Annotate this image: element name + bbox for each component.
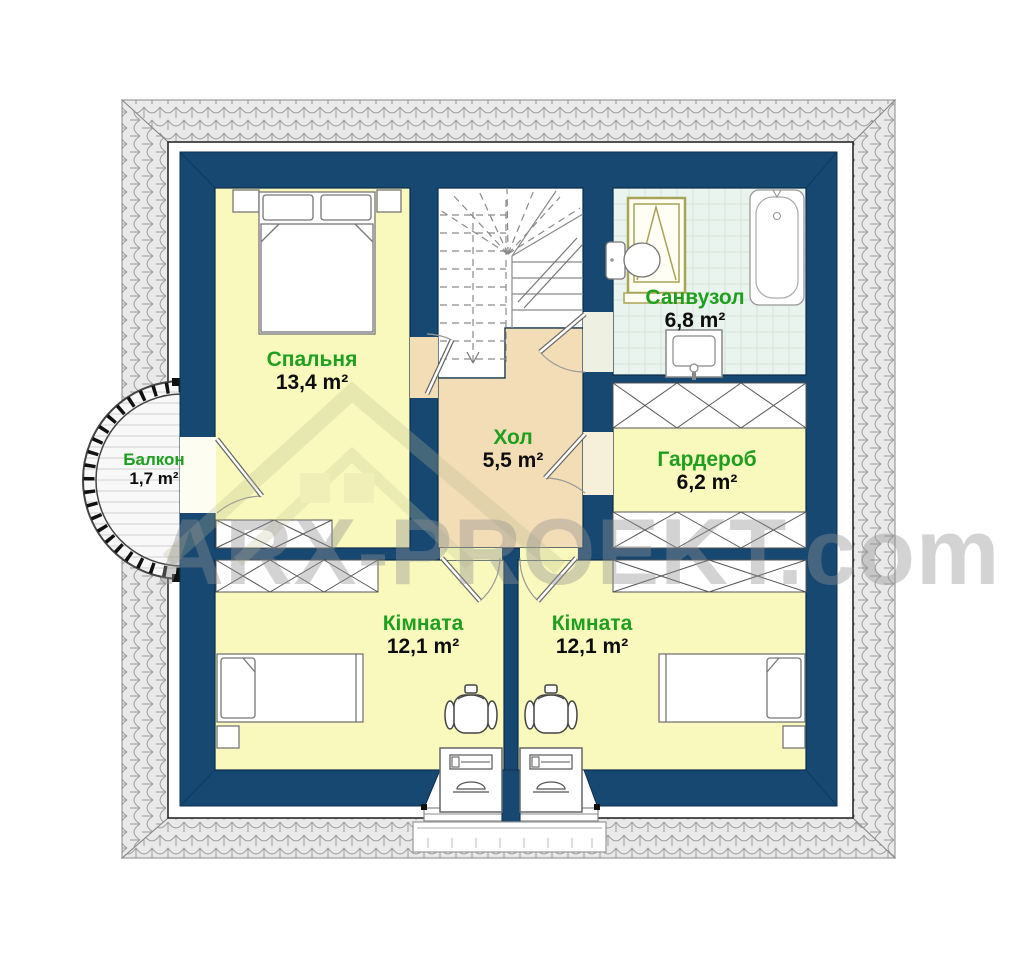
watermark-text: ARX-PROEKT.com	[156, 498, 1000, 606]
bathtub-icon	[750, 190, 804, 305]
washbasin-icon	[666, 330, 722, 380]
toilet-icon	[606, 242, 660, 279]
floor-plan: ARX-PROEKT.com Спальня 13,4 m² Санвузол …	[0, 0, 1024, 963]
desk-icon	[440, 685, 502, 812]
desk-icon	[520, 685, 582, 812]
floor-plan-drawing	[0, 0, 1024, 963]
window-sill-icon	[413, 822, 606, 852]
